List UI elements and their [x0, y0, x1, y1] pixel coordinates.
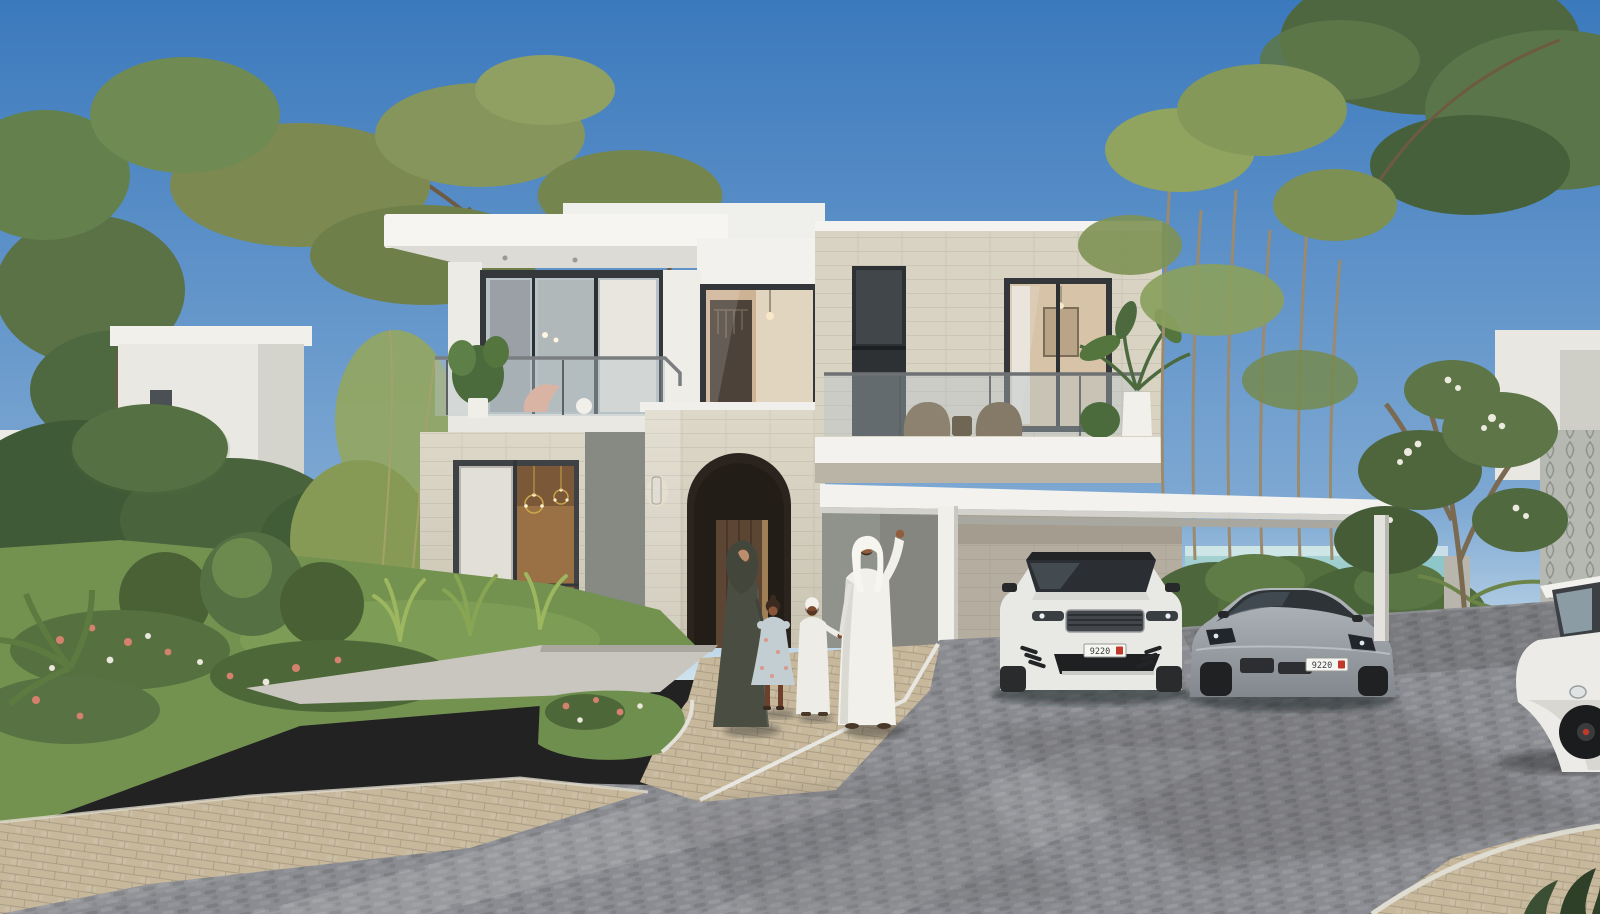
suv-plate: 9220 — [1084, 644, 1126, 657]
father-hand — [896, 530, 904, 538]
roof-slab-left — [384, 214, 728, 248]
suv-plate-number: 9220 — [1090, 647, 1110, 657]
sedan-headlight — [1206, 628, 1236, 645]
suv-headlight — [1146, 611, 1178, 621]
sedan-plate-number: 9220 — [1312, 661, 1332, 671]
daughter-face — [768, 606, 777, 615]
upper-window-middle — [700, 284, 819, 416]
suv-headlight — [1032, 611, 1064, 621]
cart-headlight — [1570, 686, 1586, 698]
son-kandura — [796, 617, 830, 714]
sedan-plate: 9220 — [1306, 658, 1348, 671]
wall-sconce — [646, 477, 668, 507]
architectural-render: 9220 9220 — [0, 0, 1600, 914]
